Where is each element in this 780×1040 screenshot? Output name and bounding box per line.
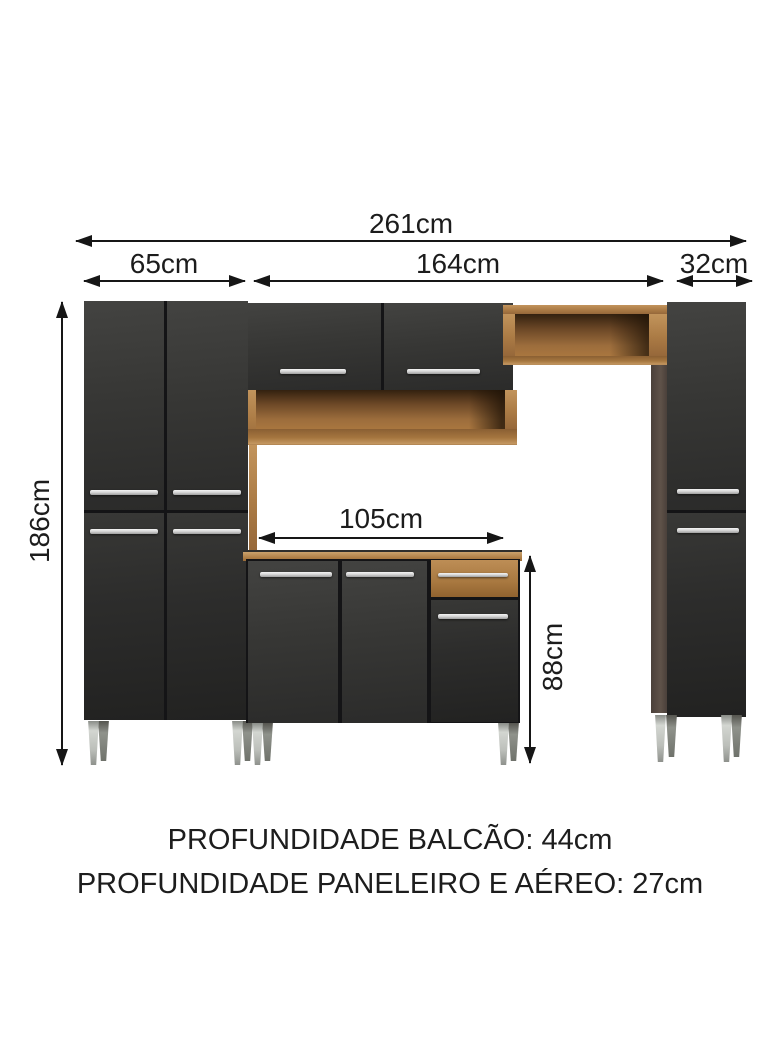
door-handle	[438, 614, 508, 619]
cabinet-door	[84, 513, 164, 720]
cabinet-door	[84, 301, 164, 510]
door-handle	[173, 490, 241, 495]
niche-shadow	[469, 390, 505, 429]
total-width-label: 261cm	[369, 208, 453, 240]
bridge-shelf-bottom	[503, 356, 667, 365]
middle-width-arrow-icon	[254, 280, 663, 282]
right-cabinet-side-panel	[651, 365, 667, 713]
cabinet-door	[342, 561, 427, 723]
door-handle	[90, 529, 158, 534]
bridge-shelf-side	[649, 314, 667, 356]
right-width-arrow-icon	[677, 280, 752, 282]
depth-note-balcao: PROFUNDIDADE BALCÃO: 44cm	[0, 818, 780, 862]
counter-cabinet	[246, 559, 520, 723]
counter-height-arrow-icon	[529, 556, 531, 763]
total-height-label: 186cm	[24, 479, 56, 563]
counter-width-arrow-icon	[259, 537, 503, 539]
left-tall-cabinet	[84, 301, 248, 720]
cabinet-leg	[664, 715, 679, 757]
cabinet-door	[248, 561, 338, 723]
left-width-label: 65cm	[130, 248, 198, 280]
drawer-handle	[438, 573, 508, 577]
total-height-arrow-icon	[61, 302, 63, 765]
niche-side-panel	[505, 390, 517, 429]
counter-width-label: 105cm	[339, 503, 423, 535]
niche-bottom-shelf	[248, 429, 517, 445]
open-niche	[256, 390, 505, 429]
support-panel	[249, 445, 257, 551]
bridge-shelf-top	[503, 305, 667, 314]
door-handle	[260, 572, 332, 577]
bridge-shelf-side	[503, 314, 515, 356]
cabinet-door	[167, 301, 248, 510]
cabinet-door	[667, 302, 746, 510]
door-handle	[280, 369, 346, 374]
door-handle	[173, 529, 241, 534]
door-handle	[677, 489, 739, 494]
product-dimension-diagram: 261cm 65cm 164cm 32cm 186cm	[0, 0, 780, 1040]
wall-cabinet	[248, 303, 513, 390]
door-handle	[407, 369, 480, 374]
total-width-arrow-icon	[76, 240, 746, 242]
door-handle	[346, 572, 414, 577]
cabinet-leg	[653, 715, 668, 762]
left-width-arrow-icon	[84, 280, 245, 282]
door-handle	[677, 528, 739, 533]
bridge-shelf-shadow	[610, 314, 649, 356]
right-tall-cabinet	[667, 302, 746, 717]
depth-note-paneleiro-aereo: PROFUNDIDADE PANELEIRO E AÉREO: 27cm	[0, 862, 780, 906]
cabinet-door	[667, 513, 746, 717]
door-handle	[90, 490, 158, 495]
counter-height-label: 88cm	[537, 623, 569, 691]
middle-width-label: 164cm	[416, 248, 500, 280]
cabinet-door	[167, 513, 248, 720]
cabinet-door	[384, 303, 513, 390]
drawer-front	[431, 560, 518, 597]
cabinet-door	[248, 303, 381, 390]
